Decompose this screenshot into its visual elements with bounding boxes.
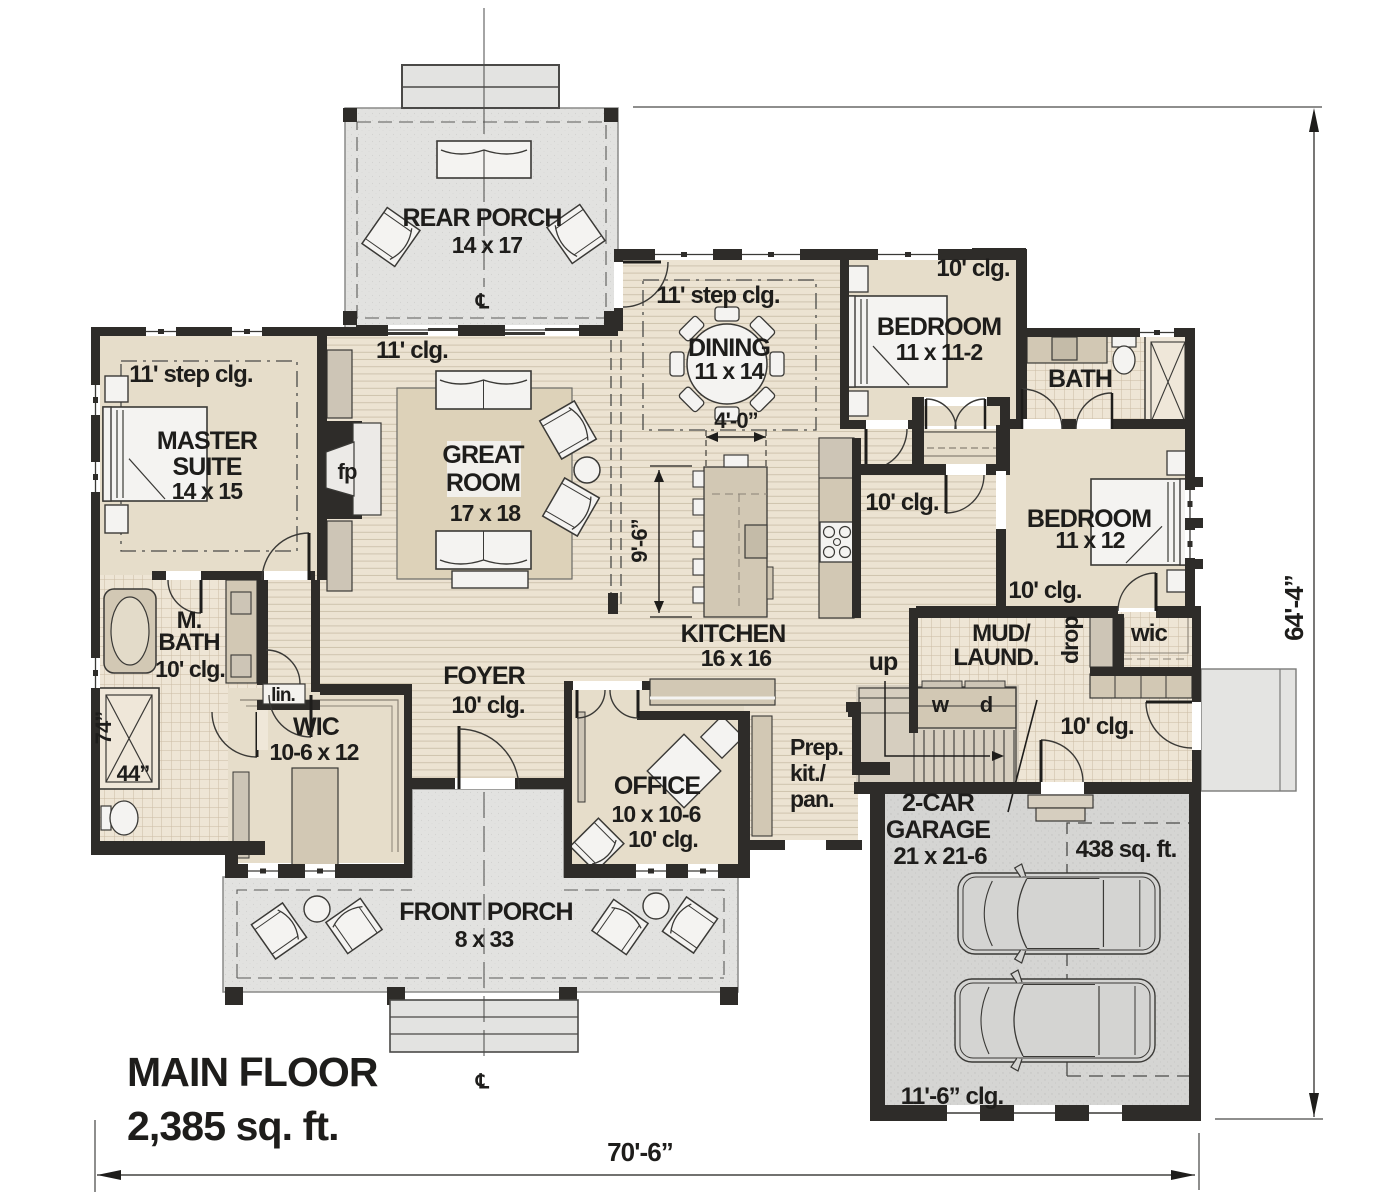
svg-text:LAUND.: LAUND. <box>953 644 1038 671</box>
svg-text:FOYER: FOYER <box>443 662 525 690</box>
svg-text:9'-6”: 9'-6” <box>627 519 652 563</box>
svg-text:REAR PORCH: REAR PORCH <box>402 204 561 232</box>
svg-text:10' clg.: 10' clg. <box>1008 577 1081 604</box>
svg-text:d: d <box>980 692 993 717</box>
svg-text:17 x 18: 17 x 18 <box>450 500 522 526</box>
svg-text:11'-6” clg.: 11'-6” clg. <box>901 1083 1004 1110</box>
svg-text:OFFICE: OFFICE <box>614 772 700 800</box>
svg-text:pan.: pan. <box>790 786 834 812</box>
svg-text:kit./: kit./ <box>790 760 827 786</box>
svg-text:wic: wic <box>1130 620 1168 647</box>
svg-text:21 x 21-6: 21 x 21-6 <box>893 843 987 870</box>
svg-text:11' step clg.: 11' step clg. <box>129 361 253 388</box>
svg-text:2-CAR: 2-CAR <box>902 789 975 817</box>
svg-text:10 x 10-6: 10 x 10-6 <box>611 801 700 827</box>
svg-text:lin.: lin. <box>271 685 295 706</box>
svg-text:MAIN FLOOR: MAIN FLOOR <box>127 1049 378 1095</box>
svg-text:MUD/: MUD/ <box>972 620 1031 647</box>
svg-text:11' step clg.: 11' step clg. <box>656 282 780 309</box>
svg-text:℄: ℄ <box>475 1071 490 1093</box>
svg-text:BATH: BATH <box>158 629 219 656</box>
svg-text:16 x 16: 16 x 16 <box>701 645 772 671</box>
svg-text:w: w <box>931 692 950 717</box>
svg-text:up: up <box>869 648 898 676</box>
svg-text:KITCHEN: KITCHEN <box>681 620 786 648</box>
svg-text:10' clg.: 10' clg. <box>865 489 938 516</box>
svg-text:drop: drop <box>1057 616 1083 664</box>
svg-text:℄: ℄ <box>475 291 490 313</box>
svg-text:11 x 12: 11 x 12 <box>1055 527 1124 553</box>
svg-text:FRONT PORCH: FRONT PORCH <box>399 898 572 926</box>
svg-text:44”: 44” <box>117 761 150 786</box>
svg-text:GREAT: GREAT <box>442 441 524 469</box>
svg-text:10' clg.: 10' clg. <box>1060 713 1133 740</box>
svg-text:74”: 74” <box>91 712 116 745</box>
svg-text:14 x 17: 14 x 17 <box>452 232 523 258</box>
svg-text:ROOM: ROOM <box>446 469 520 497</box>
svg-text:64'-4”: 64'-4” <box>1279 575 1309 641</box>
svg-text:438 sq. ft.: 438 sq. ft. <box>1076 836 1177 863</box>
svg-text:SUITE: SUITE <box>172 453 241 481</box>
svg-text:10' clg.: 10' clg. <box>936 255 1009 282</box>
svg-text:fp: fp <box>338 459 357 484</box>
svg-text:4'-0”: 4'-0” <box>714 408 758 433</box>
svg-text:Prep.: Prep. <box>790 734 843 760</box>
svg-text:MASTER: MASTER <box>157 427 258 455</box>
svg-text:BEDROOM: BEDROOM <box>877 313 1001 341</box>
svg-text:10-6 x 12: 10-6 x 12 <box>269 739 358 765</box>
svg-text:11 x 11-2: 11 x 11-2 <box>896 339 983 365</box>
svg-text:BATH: BATH <box>1048 365 1112 393</box>
svg-text:10' clg.: 10' clg. <box>451 692 524 719</box>
svg-text:14 x 15: 14 x 15 <box>172 478 244 504</box>
svg-text:11 x 14: 11 x 14 <box>694 358 764 384</box>
svg-text:8 x 33: 8 x 33 <box>455 926 514 952</box>
svg-text:GARAGE: GARAGE <box>886 816 991 844</box>
svg-text:70'-6”: 70'-6” <box>607 1137 673 1167</box>
svg-text:11' clg.: 11' clg. <box>376 337 448 364</box>
svg-text:WIC: WIC <box>293 713 340 741</box>
svg-text:2,385 sq. ft.: 2,385 sq. ft. <box>127 1103 339 1149</box>
svg-text:10' clg.: 10' clg. <box>155 656 225 682</box>
svg-text:10' clg.: 10' clg. <box>628 826 698 852</box>
